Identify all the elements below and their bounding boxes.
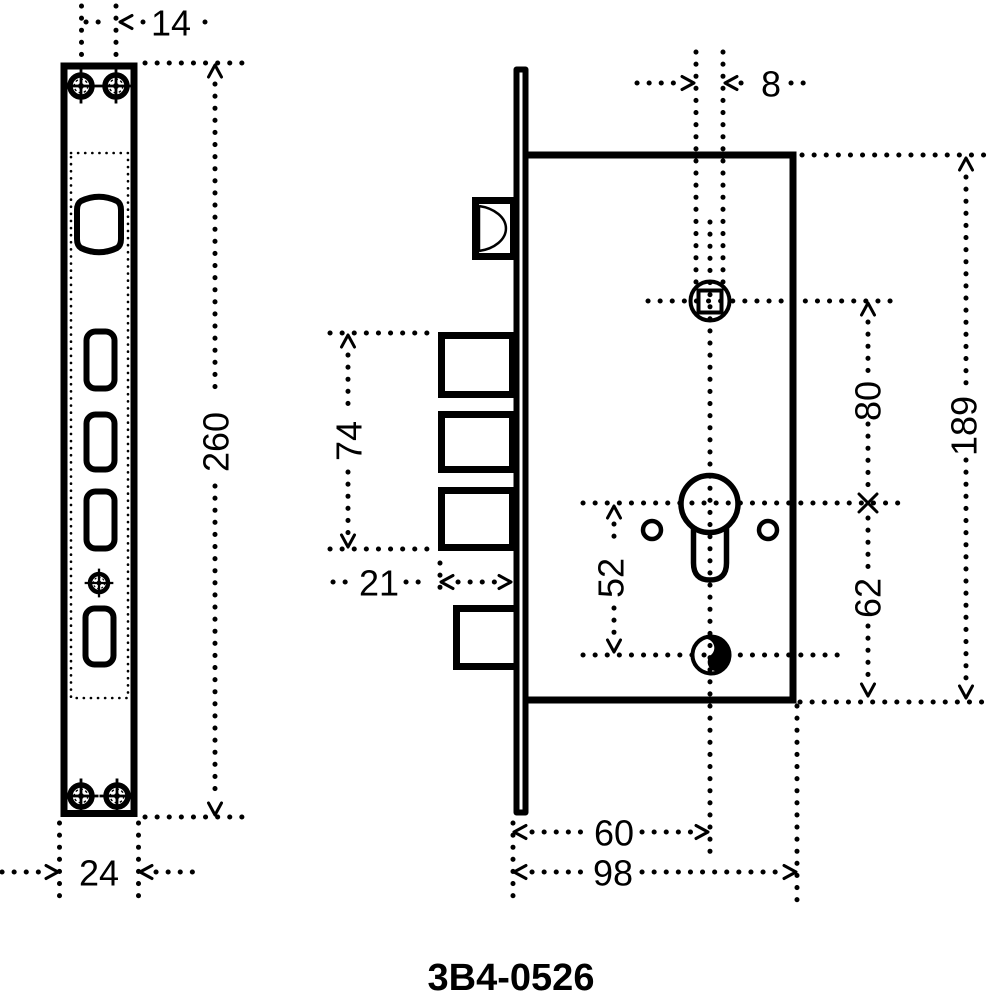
arrowhead-up [608, 506, 621, 518]
dim-text-follower-square: 8 [761, 64, 781, 105]
arrowhead-right [682, 77, 694, 90]
case-outline [525, 155, 793, 700]
dim-text-case-depth: 98 [593, 853, 633, 894]
part-number: 3B4-0526 [428, 957, 595, 999]
dim-case-depth: 98 [514, 706, 797, 900]
screw-hole-mark [99, 69, 134, 104]
dim-text-cylinder-to-screw: 52 [591, 558, 632, 598]
dim-plate-length: 260 [145, 63, 248, 817]
center-lines [583, 52, 990, 852]
faceplate-edge [517, 70, 526, 813]
arrowhead-left [441, 576, 453, 589]
screw-hole-mark [64, 779, 99, 814]
dim-follower-square: 8 [637, 64, 814, 105]
latch-cutout [77, 197, 121, 253]
faceplate-outline [64, 66, 134, 814]
dim-case-height: 189 [944, 158, 985, 698]
faceplate-front-view [64, 66, 135, 814]
dim-text-plate-length: 260 [196, 412, 237, 472]
arrowhead-down [342, 535, 355, 547]
dim-text-follower-to-cylinder: 80 [848, 381, 889, 421]
screw-hole-mark [100, 779, 135, 814]
dim-text-bolt-span: 74 [329, 421, 370, 461]
screw-hole-mark [85, 569, 114, 598]
arrowhead-down [209, 803, 222, 815]
arrowhead-left [725, 77, 737, 90]
screw-hole-mark [64, 69, 99, 104]
dim-text-cylinder-to-case-bottom: 62 [848, 578, 889, 618]
deadbolt [442, 491, 513, 548]
bolt-cutout [87, 492, 115, 549]
arrowhead-up [342, 335, 355, 347]
dim-bolt-throw: 21 [333, 563, 511, 604]
dim-text-case-height: 189 [944, 396, 985, 456]
arrowhead-right [696, 826, 708, 839]
bolt-cutout [86, 609, 114, 665]
dim-text-screw-span-top: 14 [151, 3, 191, 44]
lock-case-side-view [442, 70, 794, 813]
latch-bolt [476, 201, 514, 257]
dim-follower-to-cylinder: 80 [848, 303, 889, 512]
arrowhead-left [514, 826, 526, 839]
bolt-cutout [87, 415, 115, 470]
dim-plate-width: 24 [2, 823, 198, 902]
arrowhead-up [862, 303, 875, 315]
arrowhead-right [784, 866, 796, 879]
arrowhead-right [499, 576, 511, 589]
mounting-hole [759, 521, 777, 539]
arrowhead-down [608, 640, 621, 652]
arrowhead-left [514, 866, 526, 879]
arrowhead-left [120, 16, 132, 29]
dim-text-bolt-throw: 21 [359, 563, 399, 604]
dim-bolt-span: 74 [329, 333, 435, 549]
arrowhead-down [862, 684, 875, 696]
mounting-hole [643, 521, 661, 539]
deadbolt [442, 415, 513, 470]
dim-text-backset: 60 [594, 813, 634, 854]
technical-drawing: 14 260 24 [0, 0, 999, 1000]
arrowhead-right [46, 866, 58, 879]
bolt-cutout [87, 332, 115, 389]
deadbolt [442, 336, 513, 395]
auxiliary-bolt [457, 609, 520, 667]
dim-cylinder-to-case-bottom: 62 [848, 518, 889, 696]
arrowhead-left [140, 866, 152, 879]
dim-text-plate-width: 24 [79, 853, 119, 894]
dim-screw-span-top: 14 [82, 3, 208, 59]
arrowhead-up [960, 158, 973, 170]
arrowhead-up [209, 65, 222, 77]
arrowhead-down [960, 686, 973, 698]
dim-cylinder-to-screw: 52 [591, 506, 632, 652]
